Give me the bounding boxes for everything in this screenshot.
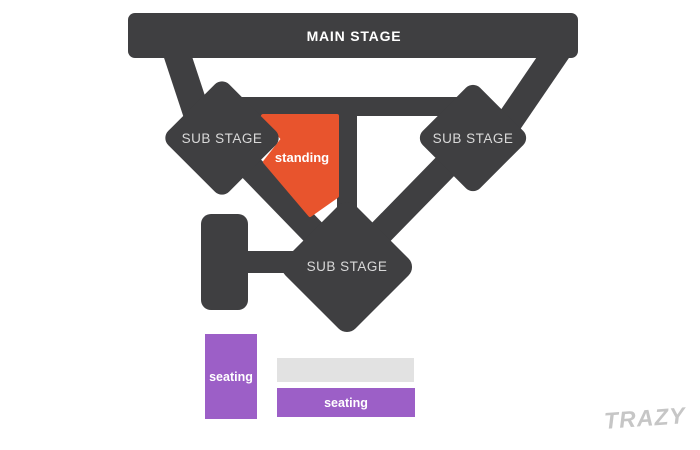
standing-zone-label: standing (275, 150, 329, 165)
seating-zone-bottom-label: seating (324, 396, 368, 410)
main-stage-label: MAIN STAGE (307, 28, 402, 44)
sub-stage-center-label: SUB STAGE (307, 259, 388, 274)
connector-bar-vertical-to-center-substage (337, 100, 357, 212)
connector-bar-platform-to-center-substage (240, 251, 302, 273)
unlabeled-gray-zone (277, 358, 414, 382)
sub-stage-right-label: SUB STAGE (433, 131, 514, 146)
venue-map-svg: MAIN STAGE SUB STAGE SUB STAGE SUB STAGE… (0, 0, 700, 450)
side-platform-block (201, 214, 248, 310)
seating-zone-left-label: seating (209, 370, 253, 384)
sub-stage-left-label: SUB STAGE (182, 131, 263, 146)
venue-stage-map: MAIN STAGE SUB STAGE SUB STAGE SUB STAGE… (0, 0, 700, 450)
